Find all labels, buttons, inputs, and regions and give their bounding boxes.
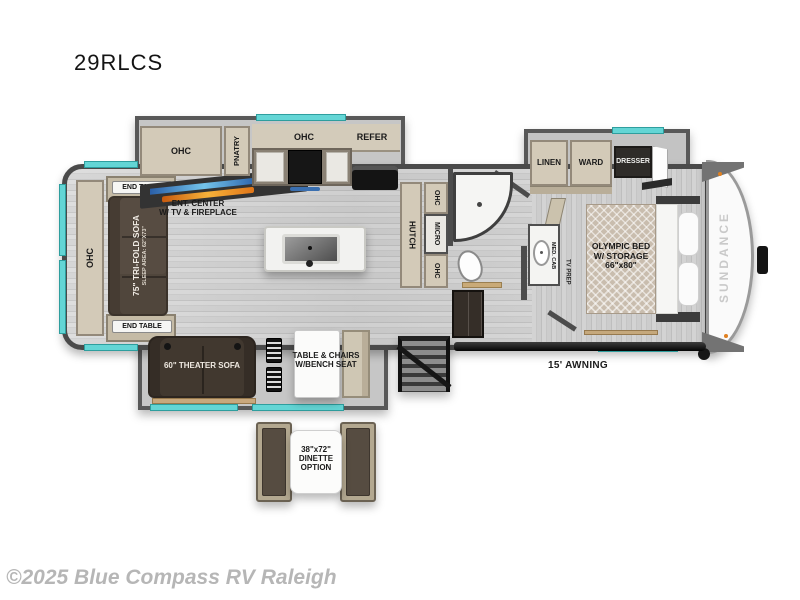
end-table-bottom-label: END TABLE [122, 323, 162, 330]
dining-chair-top [266, 338, 282, 363]
bed-sheet-fold [656, 204, 678, 314]
dresser: DRESSER [614, 146, 652, 178]
dinette-label: 38"x72" DINETTE OPTION [290, 446, 342, 473]
counter-marble-right [326, 152, 348, 182]
bed-label: OLYMPIC BED W/ STORAGE 66"x80" [584, 242, 658, 271]
awning-label: 15' AWNING [528, 360, 628, 371]
dinette-bench-right-cushion [346, 428, 370, 496]
hutch-ohc-top: OHC [424, 182, 448, 214]
bedroom-slide-drawer-band [530, 186, 612, 194]
dinette-line3: OPTION [290, 464, 342, 473]
rear-ohc-label: OHC [85, 248, 95, 268]
table-chairs-line2: W/BENCH SEAT [282, 361, 370, 370]
micro-label: MICRO [432, 222, 440, 245]
cupholder-right-icon [234, 343, 241, 350]
theater-sofa-label: 60" THEATER SOFA [164, 362, 240, 371]
linen-label: LINEN [537, 159, 561, 168]
kitchen-ohc-left: OHC [140, 126, 222, 176]
counter-marble-left [256, 152, 284, 182]
kitchen-ohc-left-label: OHC [171, 146, 191, 156]
window-living-slide-right [252, 404, 344, 411]
hutch-ohc-top-label: OHC [432, 190, 440, 206]
sofa-sleep-area-label: SLEEP AREA: 62"X73" [142, 226, 148, 285]
ent-center-label: ENT. CENTER W/ TV & FIREPLACE [138, 200, 258, 218]
theater-sofa-step [152, 398, 256, 404]
pantry-cabinet: PNATRY [224, 126, 250, 176]
dresser-label: DRESSER [616, 158, 650, 166]
bed-foot-board [584, 330, 658, 335]
sink-faucet-icon [306, 260, 313, 267]
window-rear-left-lower [59, 260, 66, 334]
sofa-label: 75" TRI-FOLD SOFA [132, 215, 142, 296]
refer-label: REFER [348, 132, 396, 142]
window-bottom-rear [84, 344, 138, 351]
window-bedroom-slide [612, 127, 664, 134]
dinette-bench-left-cushion [262, 428, 286, 496]
window-living-slide-left [150, 404, 238, 411]
clearance-light-bottom [724, 334, 728, 338]
window-kitchen-slide [256, 114, 346, 121]
microwave: MICRO [424, 214, 448, 254]
bedroom-steps-divider [468, 292, 469, 336]
bath-threshold [462, 282, 502, 288]
linen-cabinet: LINEN [530, 140, 568, 186]
hutch-cabinet: HUTCH [400, 182, 422, 288]
watermark: ©2025 Blue Compass RV Raleigh [6, 566, 337, 590]
vanity-drain-icon [540, 251, 543, 254]
window-rear-left-upper [59, 184, 66, 256]
page-title: 29RLCS [74, 50, 163, 76]
bed-head-rail [656, 196, 700, 204]
front-grab-handle [757, 246, 768, 274]
refrigerator [352, 166, 398, 190]
brand-text: SUNDANCE [718, 196, 731, 318]
table-chairs-label: TABLE & CHAIRS W/BENCH SEAT [282, 352, 370, 370]
bedroom-steps [452, 290, 484, 338]
counter-accent-strip [290, 187, 320, 191]
shower-drain-icon [477, 202, 482, 207]
end-table-bottom-chip: END TABLE [112, 320, 172, 333]
window-top-rear [84, 161, 138, 168]
dinette-bench-left [256, 422, 292, 502]
kitchen-ohc-right-label: OHC [282, 132, 326, 142]
dinette-bench-right [340, 422, 376, 502]
theater-sofa-label-wrap: 60" THEATER SOFA [148, 356, 256, 376]
bed-label-line3: 66"x80" [584, 261, 658, 271]
awning-bar [454, 342, 706, 351]
rear-ohc-cabinet: OHC [76, 180, 104, 336]
bed-pillow-top [678, 212, 699, 256]
clearance-light-top [718, 172, 722, 176]
cupholder-left-icon [164, 343, 171, 350]
ent-center-line2: W/ TV & FIREPLACE [138, 209, 258, 218]
ward-label: WARD [579, 159, 603, 168]
dining-chair-bottom [266, 367, 282, 392]
hutch-ohc-bottom-label: OHC [432, 263, 440, 279]
hutch-ohc-bottom: OHC [424, 254, 448, 288]
sink-drain-icon [308, 246, 312, 250]
wardrobe: WARD [570, 140, 612, 186]
pantry-label: PNATRY [233, 136, 241, 166]
med-cab-label: MED. CAB [550, 232, 556, 280]
bath-bedroom-wall [521, 246, 527, 300]
tv-prep-label: TV PREP [564, 250, 571, 294]
bed-pillow-bottom [678, 262, 699, 306]
hutch-label: HUTCH [407, 221, 416, 249]
cooktop-icon [288, 150, 322, 184]
